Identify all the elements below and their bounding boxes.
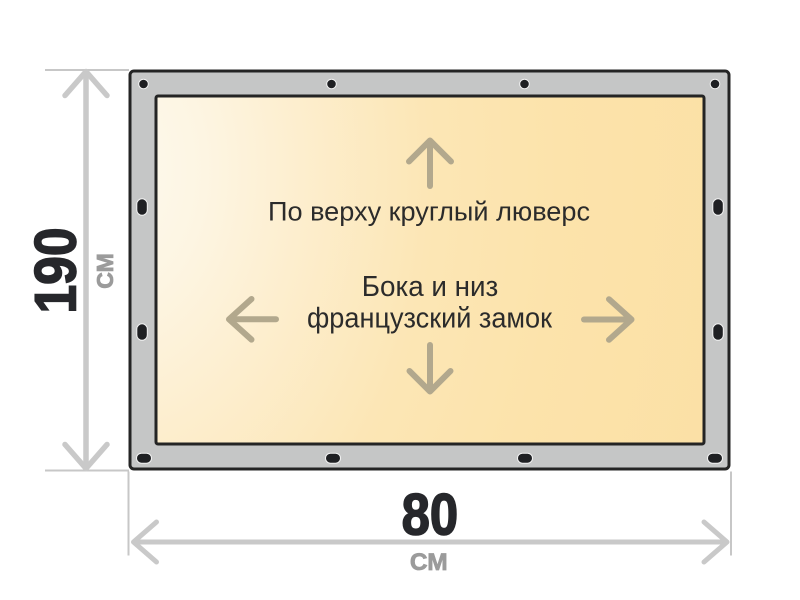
svg-text:По верху круглый люверс: По верху круглый люверс	[268, 197, 590, 227]
svg-text:Бока и низ: Бока и низ	[362, 271, 499, 303]
svg-text:80: 80	[402, 483, 459, 548]
svg-text:СМ: СМ	[92, 253, 118, 288]
svg-text:СМ: СМ	[410, 549, 448, 576]
svg-text:французский замок: французский замок	[307, 303, 552, 335]
svg-text:190: 190	[24, 228, 89, 314]
